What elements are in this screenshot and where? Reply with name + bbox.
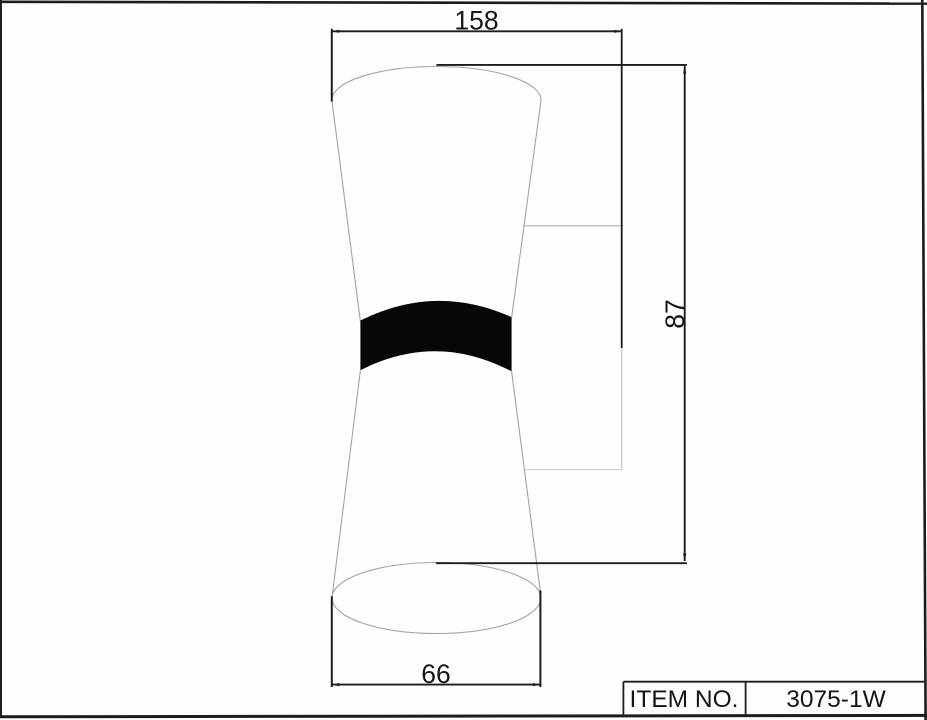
svg-text:ITEM NO.: ITEM NO. <box>630 686 739 713</box>
svg-text:158: 158 <box>454 6 498 36</box>
svg-text:3075-1W: 3075-1W <box>786 686 886 713</box>
svg-text:66: 66 <box>421 659 450 689</box>
svg-text:87: 87 <box>660 299 690 328</box>
